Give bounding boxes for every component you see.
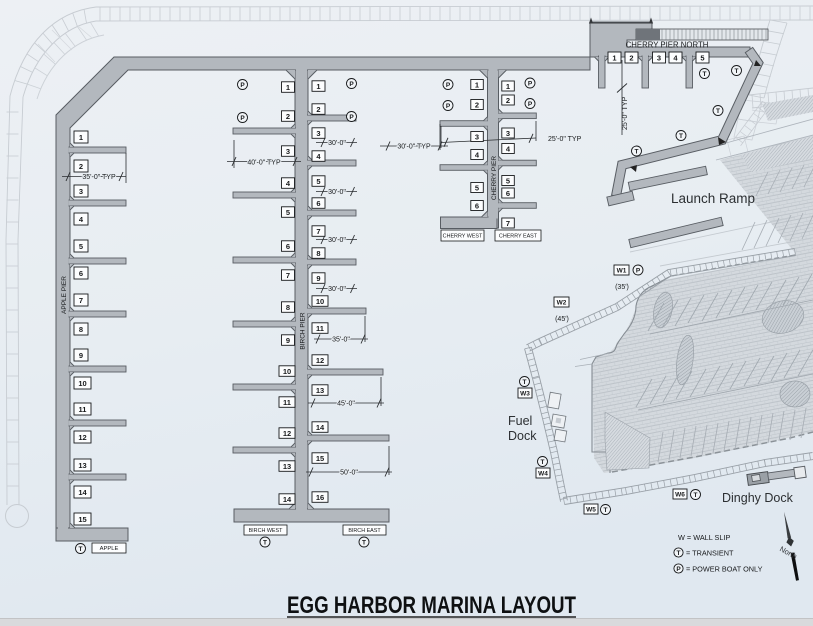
svg-text:T: T [635,148,639,155]
svg-text:9: 9 [286,336,290,345]
svg-text:6: 6 [506,189,510,198]
svg-text:6: 6 [316,199,320,208]
svg-text:11: 11 [283,398,291,407]
svg-text:2: 2 [79,162,83,171]
svg-text:11: 11 [316,324,324,333]
svg-text:35'-0": 35'-0" [332,337,350,344]
svg-text:30'-0": 30'-0" [328,140,346,147]
svg-text:W3: W3 [520,390,530,397]
svg-text:W1: W1 [617,267,627,274]
svg-text:P: P [446,82,451,89]
svg-text:14: 14 [78,488,87,497]
svg-text:8: 8 [286,303,290,312]
svg-text:2: 2 [475,100,479,109]
svg-text:T: T [523,379,527,386]
svg-text:P: P [676,566,681,573]
svg-text:P: P [349,81,354,88]
svg-text:P: P [240,115,245,122]
svg-text:P: P [446,103,451,110]
svg-text:2: 2 [506,96,510,105]
svg-text:1: 1 [316,82,320,91]
svg-text:7: 7 [79,296,83,305]
svg-text:P: P [636,267,641,274]
svg-text:6: 6 [286,242,290,251]
svg-text:5: 5 [286,208,290,217]
svg-text:CHERRY PIER: CHERRY PIER [491,156,498,200]
svg-text:3: 3 [316,129,320,138]
svg-text:15: 15 [316,454,324,463]
svg-text:10: 10 [316,297,324,306]
svg-text:W = WALL SLIP: W = WALL SLIP [678,533,731,542]
svg-text:P: P [240,82,245,89]
svg-text:9: 9 [79,351,83,360]
svg-text:T: T [694,492,698,499]
svg-text:2: 2 [286,112,290,121]
svg-text:5: 5 [475,183,479,192]
svg-text:9: 9 [316,274,320,283]
svg-text:(35'): (35') [615,284,629,291]
svg-text:10: 10 [283,367,291,376]
svg-text:30'-0" TYP: 30'-0" TYP [397,144,431,151]
svg-text:45'-0": 45'-0" [337,401,355,408]
svg-text:16: 16 [316,493,324,502]
svg-text:7: 7 [316,227,320,236]
svg-text:Dinghy Dock: Dinghy Dock [722,491,794,505]
svg-text:12: 12 [283,429,291,438]
svg-text:3: 3 [657,53,661,62]
svg-text:T: T [362,539,366,546]
svg-text:T: T [679,133,683,140]
svg-text:40'-0" TYP: 40'-0" TYP [247,160,281,167]
svg-text:T: T [677,550,681,557]
svg-text:12: 12 [316,356,324,365]
svg-text:2: 2 [629,53,633,62]
svg-text:50'-0": 50'-0" [340,470,358,477]
svg-text:6: 6 [79,269,83,278]
svg-text:T: T [703,71,707,78]
svg-text:25'-0" TYP: 25'-0" TYP [548,136,582,143]
svg-text:P: P [528,80,533,87]
svg-text:1: 1 [286,83,290,92]
svg-text:13: 13 [283,462,291,471]
svg-text:= POWER BOAT ONLY: = POWER BOAT ONLY [686,565,763,574]
svg-text:T: T [263,539,267,546]
svg-text:12: 12 [78,433,86,442]
svg-text:1: 1 [475,80,479,89]
svg-text:7: 7 [286,271,290,280]
svg-text:1: 1 [79,133,83,142]
svg-text:11: 11 [79,405,87,414]
svg-text:10: 10 [78,379,86,388]
svg-text:T: T [735,68,739,75]
svg-text:3: 3 [506,129,510,138]
svg-text:30'-0": 30'-0" [328,286,346,293]
svg-text:APPLE PIER: APPLE PIER [61,276,68,314]
svg-text:1: 1 [506,82,510,91]
svg-text:35'-0" TYP: 35'-0" TYP [82,174,116,181]
svg-text:30'-0": 30'-0" [328,237,346,244]
svg-text:3: 3 [475,132,479,141]
svg-text:13: 13 [316,386,324,395]
svg-text:13: 13 [78,461,86,470]
svg-text:15: 15 [78,515,86,524]
svg-text:T: T [716,108,720,115]
svg-text:5: 5 [700,53,704,62]
svg-text:BIRCH PIER: BIRCH PIER [300,312,307,350]
svg-text:7: 7 [506,219,510,228]
svg-text:P: P [349,114,354,121]
svg-text:Dock: Dock [508,429,537,443]
svg-text:25'-0" TYP: 25'-0" TYP [622,96,629,130]
svg-text:5: 5 [79,242,83,251]
svg-text:8: 8 [316,249,320,258]
svg-text:6: 6 [475,201,479,210]
svg-text:CHERRY WEST: CHERRY WEST [443,234,483,240]
svg-text:APPLE: APPLE [100,546,119,552]
svg-text:Fuel: Fuel [508,414,532,428]
svg-text:14: 14 [283,495,292,504]
svg-text:3: 3 [286,147,290,156]
svg-text:BIRCH WEST: BIRCH WEST [249,528,284,534]
svg-text:(45'): (45') [555,316,569,323]
svg-text:8: 8 [79,325,83,334]
svg-text:= TRANSIENT: = TRANSIENT [686,549,734,558]
svg-text:2: 2 [316,105,320,114]
svg-text:W5: W5 [586,506,596,513]
svg-text:W4: W4 [538,470,548,477]
svg-text:CHERRY EAST: CHERRY EAST [499,234,538,240]
svg-text:W2: W2 [557,299,567,306]
svg-text:T: T [541,459,545,466]
svg-text:5: 5 [506,176,510,185]
svg-text:14: 14 [316,423,325,432]
svg-text:T: T [79,546,83,553]
svg-text:Launch Ramp: Launch Ramp [671,191,755,206]
svg-text:CHERRY PIER NORTH: CHERRY PIER NORTH [626,41,709,50]
svg-text:W6: W6 [675,491,685,498]
svg-text:30'-0": 30'-0" [328,189,346,196]
svg-text:EGG HARBOR MARINA LAYOUT: EGG HARBOR MARINA LAYOUT [287,592,576,619]
svg-text:5: 5 [316,177,320,186]
svg-text:BIRCH EAST: BIRCH EAST [348,528,381,534]
svg-text:P: P [528,101,533,108]
svg-text:1: 1 [612,53,616,62]
svg-text:T: T [604,507,608,514]
svg-text:3: 3 [79,187,83,196]
